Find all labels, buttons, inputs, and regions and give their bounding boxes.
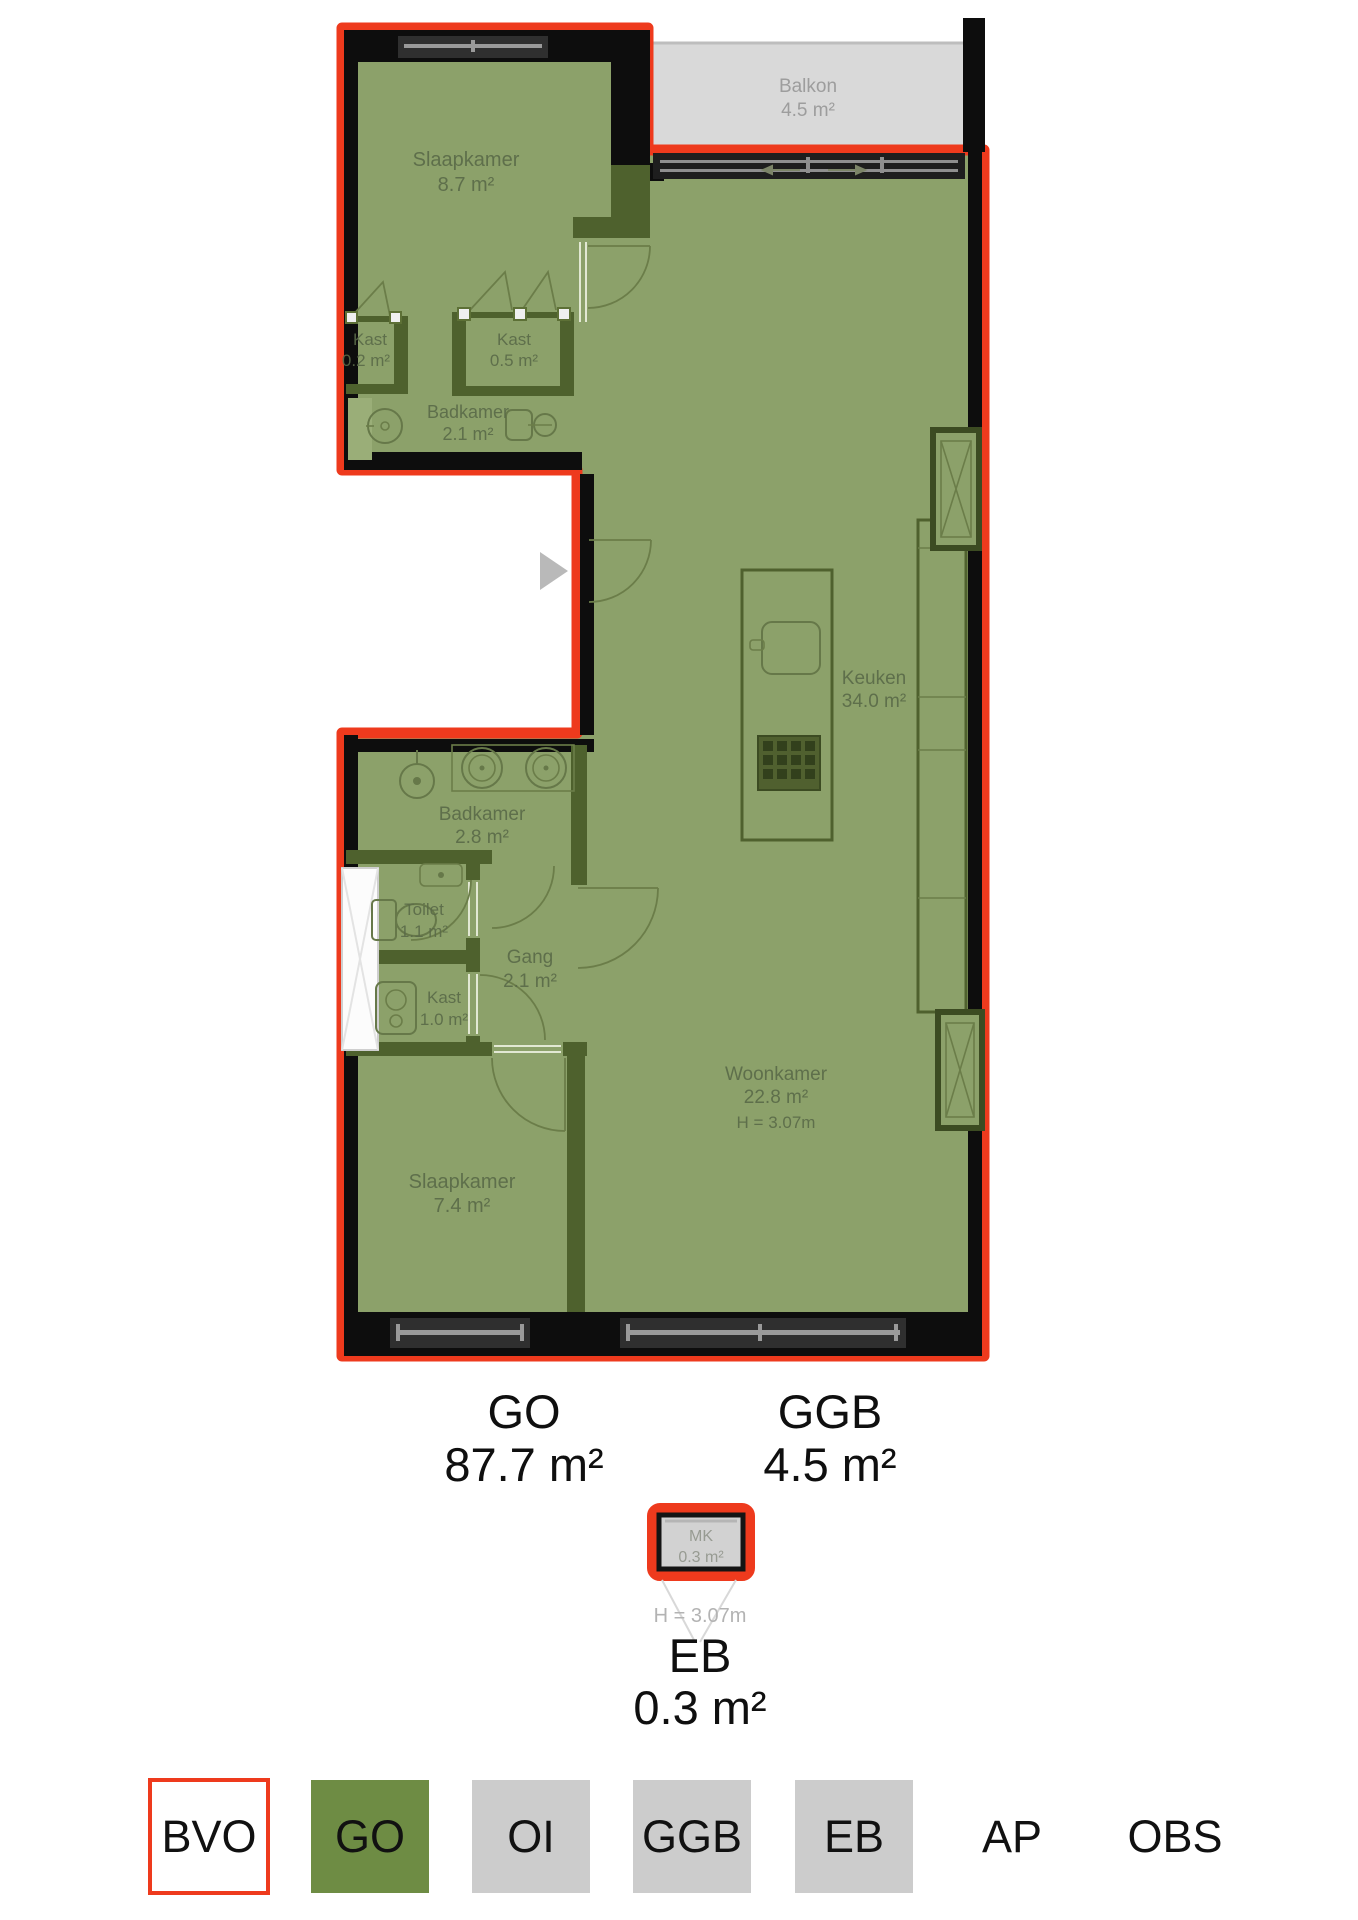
left-wall-glazing: [342, 868, 378, 1050]
summary-go-area: 87.7 m²: [444, 1438, 603, 1491]
room-area: 7.4 m²: [434, 1195, 491, 1217]
mk-area: 0.3 m²: [678, 1549, 724, 1566]
room-name: Kast: [427, 988, 461, 1007]
room-area: 22.8 m²: [744, 1087, 808, 1108]
room-area: 1.1 m²: [400, 922, 449, 941]
room-name: Badkamer: [427, 402, 509, 422]
legend-item-ggb: GGB: [633, 1780, 751, 1893]
legend-label: OBS: [1127, 1811, 1222, 1862]
legend-item-oi: OI: [472, 1780, 590, 1893]
summary-go-label: GO: [487, 1385, 560, 1438]
room-name: Keuken: [842, 668, 906, 689]
room-ceiling-height: H = 3.07m: [737, 1113, 816, 1132]
shaft-box-bottom: [938, 1012, 982, 1128]
room-area: 0.5 m²: [490, 351, 539, 370]
room-area: 1.0 m²: [420, 1010, 469, 1029]
legend-label: EB: [824, 1811, 884, 1862]
shaft-box-top: [933, 430, 979, 548]
legend-label: AP: [982, 1811, 1042, 1862]
mk-name: MK: [689, 1528, 713, 1545]
area-summary: GO 87.7 m² GGB 4.5 m²: [444, 1385, 896, 1491]
summary-eb-area: 0.3 m²: [633, 1681, 766, 1734]
floorplan-page: Slaapkamer 8.7 m² Balkon 4.5 m² Kast 0.2…: [0, 0, 1358, 1920]
room-name: Balkon: [779, 76, 837, 97]
legend-item-go: GO: [311, 1780, 429, 1893]
legend-item-ap: AP: [982, 1811, 1042, 1862]
room-name: Kast: [497, 330, 531, 349]
summary-ggb-area: 4.5 m²: [763, 1438, 896, 1491]
room-name: Slaapkamer: [409, 1171, 516, 1193]
room-name: Gang: [507, 947, 553, 968]
room-area: 34.0 m²: [842, 691, 906, 712]
room-area: 4.5 m²: [781, 100, 835, 121]
legend-item-bvo: BVO: [150, 1780, 268, 1893]
room-name: Badkamer: [439, 804, 526, 825]
summary-eb-label: EB: [669, 1629, 732, 1682]
legend-label: BVO: [161, 1811, 256, 1862]
legend-label: GGB: [642, 1811, 742, 1862]
room-name: Kast: [353, 330, 387, 349]
summary-ggb-label: GGB: [778, 1385, 882, 1438]
room-area: 2.8 m²: [455, 827, 509, 848]
floorplan-drawing: Slaapkamer 8.7 m² Balkon 4.5 m² Kast 0.2…: [0, 0, 1358, 1920]
legend-label: OI: [507, 1811, 555, 1862]
eb-ceiling-height: H = 3.07m: [654, 1605, 747, 1627]
entrance-arrow-icon: [540, 552, 568, 590]
legend: BVO GO OI GGB EB AP OBS: [150, 1780, 1223, 1893]
room-name: Toilet: [404, 900, 444, 919]
eb-summary: H = 3.07m EB 0.3 m²: [633, 1605, 766, 1734]
room-area: 8.7 m²: [438, 174, 495, 196]
room-area: 2.1 m²: [503, 971, 557, 992]
room-area: 2.1 m²: [442, 424, 493, 444]
legend-item-obs: OBS: [1127, 1811, 1222, 1862]
legend-item-eb: EB: [795, 1780, 913, 1893]
room-name: Woonkamer: [725, 1064, 828, 1085]
legend-label: GO: [335, 1811, 405, 1862]
room-area: 0.2 m²: [342, 351, 391, 370]
room-name: Slaapkamer: [413, 149, 520, 171]
